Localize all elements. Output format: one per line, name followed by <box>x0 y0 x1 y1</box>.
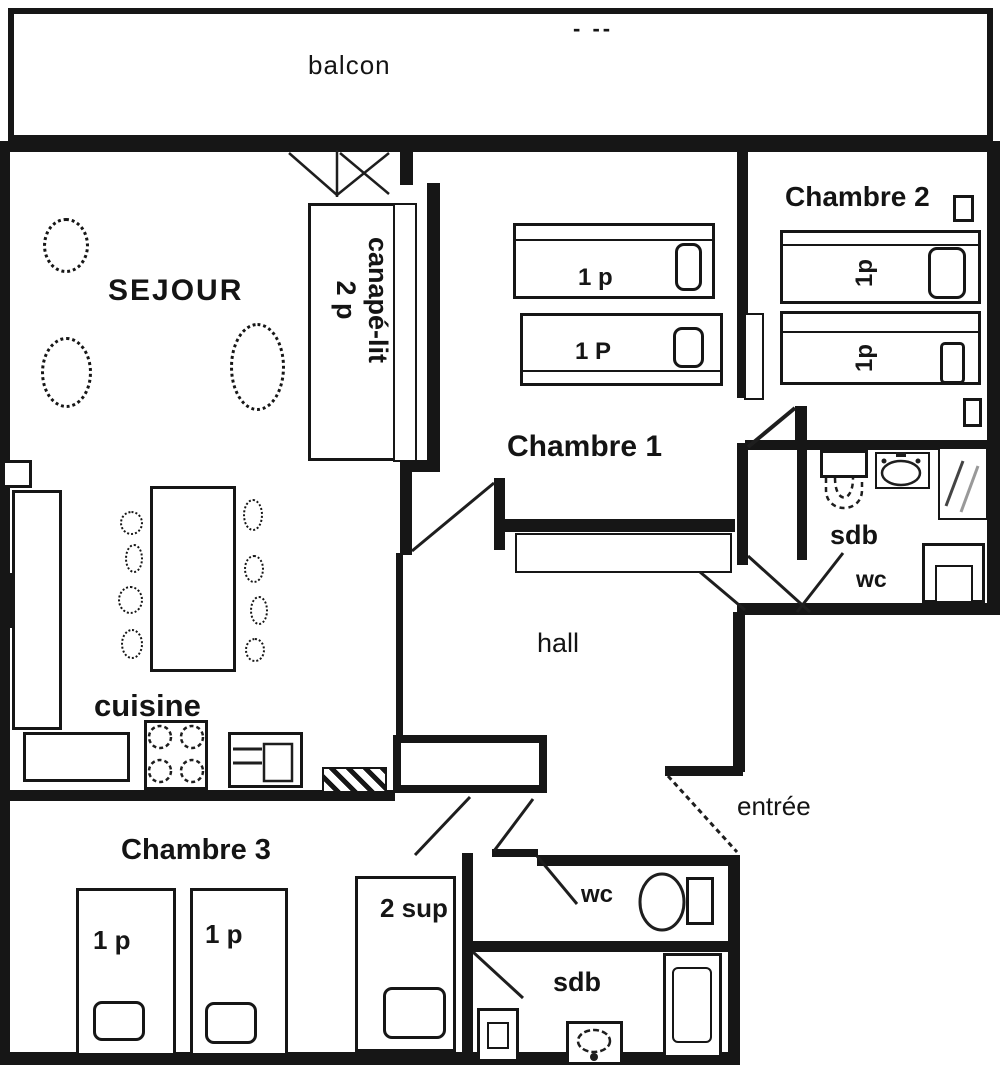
room2-door-swing <box>748 408 795 447</box>
wc-bottom-label: wc <box>581 881 613 909</box>
apartment-floor-plan: 1 p 1 P 1p 1p 1 p 1 p 2 sup <box>0 0 1000 1073</box>
vestibule-door-swing-a <box>494 799 533 851</box>
room2-label: Chambre 2 <box>785 181 930 213</box>
bath-right-door-swing-b <box>797 553 843 612</box>
sofa-bed-label: canapé-lit 2 p <box>330 210 394 390</box>
room1-door-swing <box>412 483 494 551</box>
bath-bottom-door-swing <box>473 952 523 998</box>
room3-label: Chambre 3 <box>121 834 271 867</box>
appliance-detail-icon <box>233 744 292 781</box>
room3-door-swing <box>415 797 470 855</box>
balcony-label: balcon <box>308 50 391 81</box>
washbasin-right-icon <box>882 452 921 485</box>
wc-right-label: wc <box>856 566 887 593</box>
bath-right-door-swing-c <box>700 572 745 610</box>
entry-door-swing <box>668 776 737 852</box>
sofa-bed-label-line2: 2 p <box>330 210 362 390</box>
mirror-line-dark <box>946 461 963 506</box>
toilet-bowl-bottom-icon <box>640 874 684 930</box>
bath-right-door-swing-a <box>748 556 810 612</box>
living-label: SEJOUR <box>108 274 243 308</box>
kitchen-label: cuisine <box>94 688 201 724</box>
stove-burners-icon <box>149 726 203 782</box>
toilet-bowl-right-icon <box>826 478 862 508</box>
balcony-door-icon <box>289 150 389 197</box>
mirror-line-light <box>961 466 978 512</box>
balcony-marks: - -- <box>573 16 613 42</box>
bath-bottom-label: sdb <box>553 967 601 998</box>
sofa-bed-label-line1: canapé-lit <box>362 210 394 390</box>
hall-label: hall <box>537 628 579 659</box>
room1-label: Chambre 1 <box>507 430 662 464</box>
entrance-label: entrée <box>737 791 811 822</box>
wc-bottom-door-swing <box>537 856 577 904</box>
bath-right-label: sdb <box>830 520 878 551</box>
washbasin-bottom-icon <box>578 1030 610 1061</box>
